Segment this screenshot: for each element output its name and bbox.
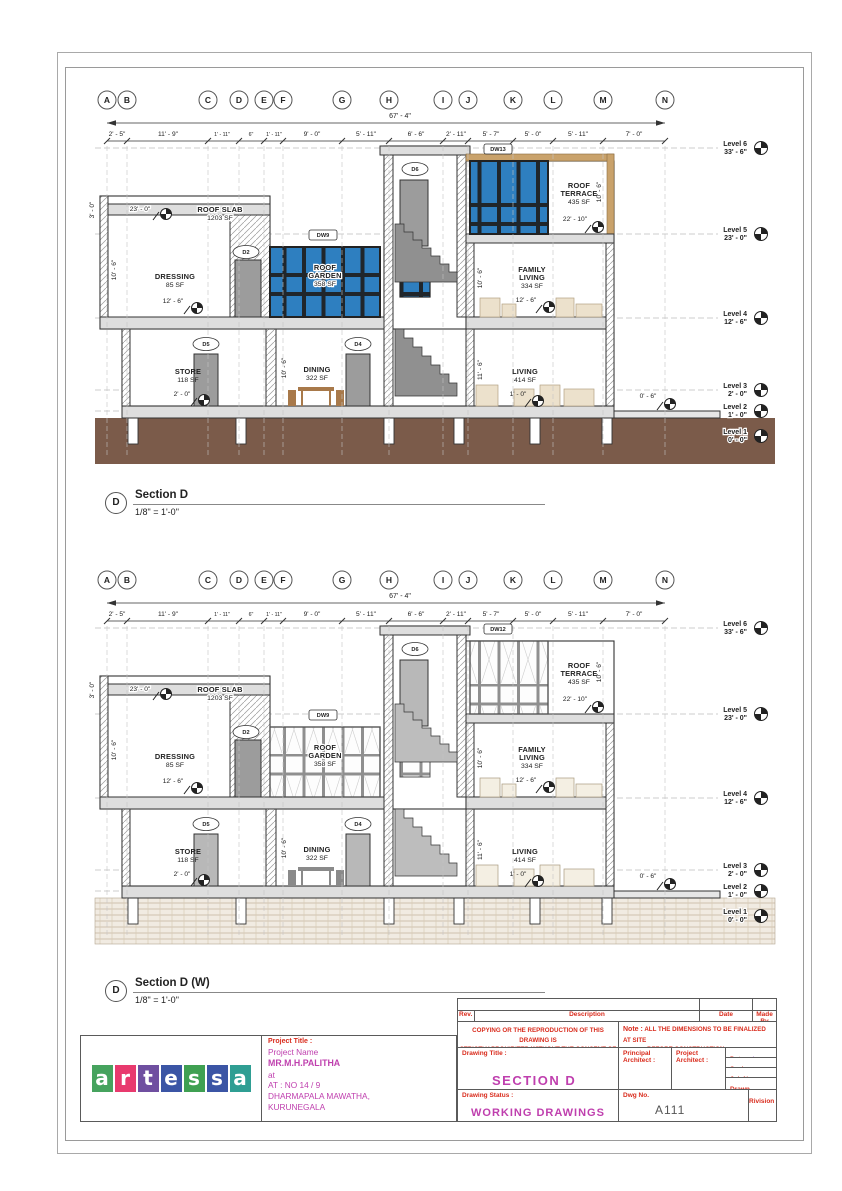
grid-label: J	[466, 95, 471, 105]
artessa-logo: a r t e s s a	[81, 1036, 261, 1121]
terrace-beam	[466, 154, 614, 161]
room-roof-slab-area: 1203 SF	[207, 215, 233, 222]
room-roof-terrace-area: 435 SF	[568, 199, 590, 206]
section-scale: 1/8" = 1'-0"	[135, 995, 179, 1005]
tag-window-wall: DW13	[490, 147, 506, 153]
room-living: LIVING	[512, 847, 538, 856]
level-elev: 0' - 0"	[728, 437, 747, 444]
level-icon	[755, 312, 768, 325]
room-dining-area: 322 SF	[306, 375, 328, 382]
dim: 2' - 5"	[109, 131, 126, 138]
grid-label: H	[386, 575, 392, 585]
logo-cell: a r t e s s a	[80, 1035, 262, 1122]
family-left-wall	[466, 243, 474, 317]
spot-elev: 22' - 10"	[563, 216, 588, 223]
level-icon	[755, 864, 768, 877]
revision-cell: Rivision	[748, 1089, 777, 1122]
living-left-wall	[466, 809, 474, 886]
level-name: Level 5	[723, 707, 747, 714]
level-icon	[755, 792, 768, 805]
dim: 1' - 11"	[214, 612, 230, 618]
level-name: Level 4	[723, 791, 747, 798]
dim: 5' - 11"	[356, 611, 377, 618]
grid-label: D	[236, 95, 242, 105]
overall-dimension: 67' - 4"	[107, 113, 665, 126]
vdim: 10' - 6"	[477, 267, 484, 288]
dim: 5' - 11"	[568, 131, 589, 138]
level-name: Level 6	[723, 621, 747, 628]
room-roof-slab: ROOF SLAB	[197, 205, 242, 214]
right-wall	[606, 243, 614, 406]
dim: 11' - 9"	[158, 131, 179, 138]
room-store-area: 118 SF	[177, 377, 198, 384]
grid-label: L	[550, 575, 555, 585]
drawing-title-cell: Drawing Title : SECTION D	[457, 1047, 619, 1090]
store-dining-wall	[266, 809, 276, 886]
dwg-no-value: A111	[655, 1103, 748, 1117]
grid-label: A	[104, 575, 110, 585]
grid-label: M	[599, 95, 606, 105]
level-elev: 23' - 0"	[724, 715, 747, 722]
note-line1: ALL THE DIMENSIONS TO BE FINALIZED AT SI…	[623, 1026, 766, 1044]
tower-right-wall	[457, 154, 466, 317]
room-living: LIVING	[512, 367, 538, 376]
grid-label: H	[386, 95, 392, 105]
section-d-drawing: A B C D E F G H I J K L M N 67' - 4" 2' …	[70, 84, 790, 476]
logo-letter: s	[184, 1065, 205, 1092]
terrace-post	[607, 154, 614, 236]
level4-slab-left	[100, 317, 390, 329]
dim: 1' - 11"	[214, 132, 230, 138]
grid-label: N	[662, 575, 668, 585]
section-title: Section D (W)	[135, 977, 210, 989]
tag-d4: D4	[354, 342, 362, 348]
room-roof-garden-area: 358 SF	[314, 761, 336, 768]
dim: 6"	[249, 612, 254, 618]
tower-left-wall	[384, 154, 393, 406]
dim: 5' - 11"	[356, 131, 377, 138]
grid-label: J	[466, 575, 471, 585]
tag-dw9: DW9	[317, 713, 329, 719]
level-icon	[755, 430, 768, 443]
tag-d6: D6	[411, 647, 418, 653]
dwg-no-cell: Dwg No. A111	[618, 1089, 749, 1122]
spot-elev: 0' - 6"	[640, 873, 657, 880]
grid-label: M	[599, 575, 606, 585]
room-dressing: DRESSING	[155, 752, 195, 761]
grid-label: E	[261, 575, 267, 585]
vdim: 10' - 6"	[596, 181, 603, 202]
tag-d2: D2	[242, 250, 249, 256]
spot-elev: 23' - 0"	[130, 686, 151, 693]
overall-dimension: 67' - 4"	[107, 593, 665, 606]
tower-roof-slab	[380, 626, 470, 635]
ground-slab	[122, 406, 614, 418]
door-d4	[346, 834, 370, 886]
dim: 5' - 0"	[525, 131, 542, 138]
level4-slab-right	[466, 797, 614, 809]
room-roof-slab: ROOF SLAB	[197, 685, 242, 694]
level-elev: 23' - 0"	[724, 235, 747, 242]
vdim: 3' - 0"	[89, 201, 96, 218]
spot-elev: 1' - 0"	[510, 871, 527, 878]
grid-bubbles: A B C D E F G H I J K L M N	[98, 571, 674, 589]
spot-elev: 12' - 6"	[163, 778, 184, 785]
level-elev: 0' - 0"	[728, 917, 747, 924]
level-icon	[755, 910, 768, 923]
spot-elev: 0' - 6"	[640, 393, 657, 400]
vdim: 10' - 6"	[281, 837, 288, 858]
level-name: Level 6	[723, 141, 747, 148]
roof-terrace-window	[470, 641, 548, 714]
project-address1: AT : NO 14 / 9	[268, 1080, 456, 1091]
room-roof-garden: GARDEN	[308, 751, 341, 760]
level4-slab-left	[100, 797, 390, 809]
logo-letter: a	[230, 1065, 251, 1092]
level-icon	[755, 228, 768, 241]
room-living-area: 414 SF	[514, 857, 536, 864]
dim: 2' - 11"	[446, 611, 467, 618]
level-name: Level 1	[723, 429, 747, 436]
store-dining-wall	[266, 329, 276, 406]
grid-label: G	[339, 575, 346, 585]
vdim: 11' - 6"	[477, 359, 484, 380]
dim: 7' - 0"	[626, 611, 643, 618]
logo-letter: s	[207, 1065, 228, 1092]
grid-label: D	[236, 575, 242, 585]
section-dw-drawing: A B C D E F G H I J K L M N 67' - 4" 2' …	[70, 564, 790, 956]
project-at: at	[268, 1070, 456, 1081]
level-name: Level 5	[723, 227, 747, 234]
vdim: 10' - 6"	[477, 747, 484, 768]
level-elev: 1' - 0"	[728, 892, 747, 899]
overall-dim-text: 67' - 4"	[389, 593, 411, 600]
dim: 5' - 0"	[525, 611, 542, 618]
right-apron-slab	[614, 411, 720, 418]
tag-d6: D6	[411, 167, 418, 173]
logo-letter: t	[138, 1065, 159, 1092]
level-elev: 12' - 6"	[724, 799, 747, 806]
level-icon	[755, 384, 768, 397]
site-note: Note : ALL THE DIMENSIONS TO BE FINALIZE…	[618, 1021, 777, 1048]
level-elev: 2' - 0"	[728, 871, 747, 878]
level-name: Level 3	[723, 383, 747, 390]
logo-letter: e	[161, 1065, 182, 1092]
room-roof-garden-area: 358 SF	[314, 281, 336, 288]
room-dressing: DRESSING	[155, 272, 195, 281]
dimension-string: 2' - 5" 11' - 9" 1' - 11" 6" 1' - 11" 9'…	[104, 611, 668, 624]
room-roof-terrace: TERRACE	[560, 669, 597, 678]
overall-dim-text: 67' - 4"	[389, 113, 411, 120]
store-left-wall	[122, 329, 130, 406]
dim: 9' - 0"	[304, 131, 321, 138]
grid-bubbles: A B C D E F G H I J K L M N	[98, 91, 674, 109]
grid-label: G	[339, 95, 346, 105]
living-left-wall	[466, 329, 474, 406]
room-dressing-area: 85 SF	[166, 762, 184, 769]
level-icon	[755, 142, 768, 155]
spot-elev: 22' - 10"	[563, 696, 588, 703]
room-roof-terrace: TERRACE	[560, 189, 597, 198]
level-name: Level 1	[723, 909, 747, 916]
client-name: MR.M.H.PALITHA	[268, 1058, 456, 1070]
principal-architect-cell: Principal Architect :	[618, 1047, 672, 1090]
project-architect-label: Project Architect :	[672, 1048, 725, 1064]
level-icon	[755, 885, 768, 898]
drawing-status-label: Drawing Status :	[458, 1090, 618, 1099]
dim: 5' - 11"	[568, 611, 589, 618]
room-family-living: LIVING	[519, 273, 545, 282]
spot-elev: 1' - 0"	[510, 391, 527, 398]
level-elev: 12' - 6"	[724, 319, 747, 326]
room-family-living-area: 334 SF	[521, 763, 543, 770]
grid-label: C	[205, 575, 211, 585]
level-icon	[755, 622, 768, 635]
drawing-title-label: Drawing Title :	[458, 1048, 618, 1057]
dim: 6' - 6"	[408, 611, 425, 618]
project-architect-cell: Project Architect :	[671, 1047, 726, 1090]
terrace-slab	[466, 714, 614, 723]
room-roof-garden: GARDEN	[308, 271, 341, 280]
project-name-label: Project Name	[268, 1047, 456, 1058]
level-name: Level 2	[723, 404, 747, 411]
grid-label: F	[280, 95, 285, 105]
right-apron-slab	[614, 891, 720, 898]
dimension-string: 2' - 5" 11' - 9" 1' - 11" 6" 1' - 11" 9'…	[104, 131, 668, 144]
dim: 9' - 0"	[304, 611, 321, 618]
grid-label: B	[124, 575, 130, 585]
tag-d5: D5	[202, 342, 209, 348]
vdim: 10' - 6"	[596, 661, 603, 682]
room-store: STORE	[175, 367, 201, 376]
section-title-rule	[133, 504, 545, 505]
room-family-living-area: 334 SF	[521, 283, 543, 290]
store-left-wall	[122, 809, 130, 886]
project-address3: KURUNEGALA	[268, 1102, 456, 1113]
grid-label: E	[261, 95, 267, 105]
copyright-note: COPYING OR THE REPRODUCTION OF THIS DRAW…	[457, 1021, 619, 1048]
tower-left-wall	[384, 634, 393, 886]
grid-label: K	[510, 575, 517, 585]
logo-letter: a	[92, 1065, 113, 1092]
grid-label: C	[205, 95, 211, 105]
dim: 2' - 11"	[446, 131, 467, 138]
grid-label: N	[662, 95, 668, 105]
room-dining: DINING	[303, 845, 330, 854]
ground-slab	[122, 886, 614, 898]
grid-label: K	[510, 95, 517, 105]
tag-d4: D4	[354, 822, 362, 828]
tower-roof-slab	[380, 146, 470, 155]
tag-window-wall: DW12	[490, 627, 506, 633]
section-title-rule	[133, 992, 545, 993]
room-dining-area: 322 SF	[306, 855, 328, 862]
grid-label: L	[550, 95, 555, 105]
level-name: Level 3	[723, 863, 747, 870]
section-title: Section D	[135, 489, 188, 501]
right-wall	[606, 723, 614, 886]
level-name: Level 4	[723, 311, 747, 318]
section-bubble: D	[105, 980, 127, 1002]
tag-dw9: DW9	[317, 233, 329, 239]
revision-label: Rivision	[749, 1098, 774, 1105]
grid-label: B	[124, 95, 130, 105]
level-markers: Level 6 33' - 6" Level 5 23' - 0" Level …	[723, 621, 767, 924]
room-family-living: LIVING	[519, 753, 545, 762]
level-name: Level 2	[723, 884, 747, 891]
grid-label: I	[442, 95, 444, 105]
spot-elev: 2' - 0"	[174, 391, 191, 398]
ground-fill	[95, 898, 775, 944]
level4-slab-right	[466, 317, 614, 329]
family-left-wall	[466, 723, 474, 797]
room-living-area: 414 SF	[514, 377, 536, 384]
dim: 5' - 7"	[483, 611, 500, 618]
level-elev: 33' - 6"	[724, 629, 747, 636]
drawing-title-value: SECTION D	[492, 1073, 618, 1088]
section-scale: 1/8" = 1'-0"	[135, 507, 179, 517]
drawing-status-value: WORKING DRAWINGS	[458, 1107, 618, 1119]
level-elev: 1' - 0"	[728, 412, 747, 419]
project-address2: DHARMAPALA MAWATHA,	[268, 1091, 456, 1102]
grid-label: F	[280, 575, 285, 585]
spot-elev: 2' - 0"	[174, 871, 191, 878]
vdim: 10' - 6"	[111, 259, 118, 280]
spot-elev: 12' - 6"	[516, 297, 537, 304]
dim: 1' - 11"	[266, 132, 282, 138]
spot-elev: 12' - 6"	[516, 777, 537, 784]
grid-label: A	[104, 95, 110, 105]
tower-right-wall	[457, 634, 466, 797]
project-title-label: Project Title :	[262, 1036, 456, 1045]
dim: 6"	[249, 132, 254, 138]
logo-letter: r	[115, 1065, 136, 1092]
level-icon	[755, 708, 768, 721]
project-title-cell: Project Title : Project Name MR.M.H.PALI…	[261, 1035, 457, 1122]
dim: 2' - 5"	[109, 611, 126, 618]
dim: 7' - 0"	[626, 131, 643, 138]
spot-icon	[657, 879, 676, 891]
level-elev: 2' - 0"	[728, 391, 747, 398]
drawing-status-cell: Drawing Status : WORKING DRAWINGS	[457, 1089, 619, 1122]
tag-d5: D5	[202, 822, 209, 828]
dim: 6' - 6"	[408, 131, 425, 138]
spot-icon	[657, 399, 676, 411]
section-bubble: D	[105, 492, 127, 514]
dwg-no-label: Dwg No.	[619, 1090, 748, 1099]
dim: 5' - 7"	[483, 131, 500, 138]
note-label: Note :	[623, 1026, 643, 1033]
door-d4	[346, 354, 370, 406]
vdim: 3' - 0"	[89, 681, 96, 698]
vdim: 10' - 6"	[111, 739, 118, 760]
level-elev: 33' - 6"	[724, 149, 747, 156]
roof-terrace-window	[470, 161, 548, 234]
vdim: 11' - 6"	[477, 839, 484, 860]
room-store-area: 118 SF	[177, 857, 198, 864]
principal-architect-label: Principal Architect :	[619, 1048, 671, 1064]
dim: 11' - 9"	[158, 611, 179, 618]
level-icon	[755, 405, 768, 418]
spot-elev: 23' - 0"	[130, 206, 151, 213]
grid-label: I	[442, 575, 444, 585]
tag-d2: D2	[242, 730, 249, 736]
ground-fill	[95, 418, 775, 464]
room-roof-slab-area: 1203 SF	[207, 695, 233, 702]
level-markers: Level 6 33' - 6" Level 5 23' - 0" Level …	[723, 141, 767, 444]
vdim: 10' - 6"	[281, 357, 288, 378]
dim: 1' - 11"	[266, 612, 282, 618]
room-roof-terrace-area: 435 SF	[568, 679, 590, 686]
room-store: STORE	[175, 847, 201, 856]
room-dining: DINING	[303, 365, 330, 374]
spot-elev: 12' - 6"	[163, 298, 184, 305]
terrace-slab	[466, 234, 614, 243]
copyright-line1: COPYING OR THE REPRODUCTION OF THIS DRAW…	[458, 1026, 618, 1045]
room-dressing-area: 85 SF	[166, 282, 184, 289]
